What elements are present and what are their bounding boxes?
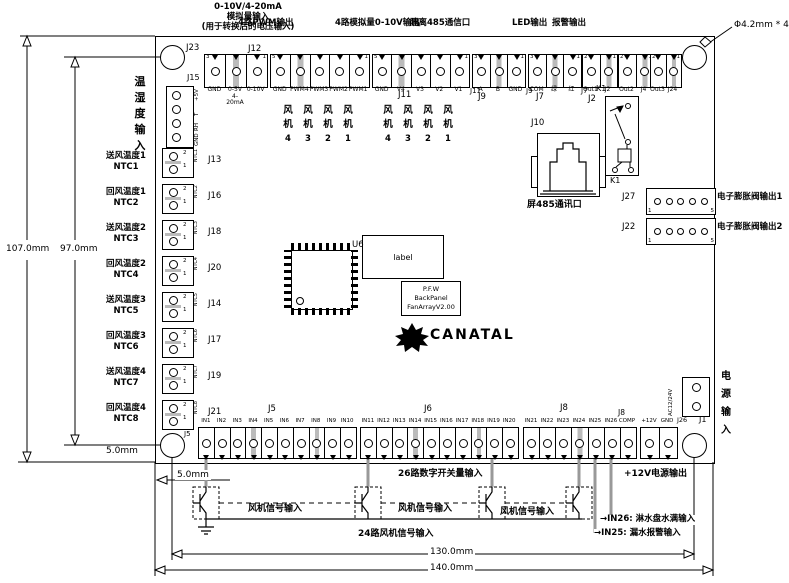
fan-char: 风 bbox=[440, 104, 456, 118]
annotation-digital-input-26: 26路数字开关量输入 bbox=[398, 469, 483, 479]
relay-k1 bbox=[605, 96, 639, 176]
pin-circle bbox=[477, 67, 486, 76]
pin-label: V1 bbox=[449, 87, 468, 94]
fan-number: 1 bbox=[340, 132, 356, 146]
ntc-silk-label: NTC2 bbox=[193, 185, 199, 198]
annotation-power-input: 电 源 输 入 bbox=[719, 368, 733, 440]
pin-circle bbox=[297, 439, 306, 448]
pin-cell bbox=[471, 428, 487, 458]
ntc-connector: 2 1 bbox=[162, 292, 194, 322]
pin-cell bbox=[376, 428, 392, 458]
pin-label: IN22 bbox=[539, 418, 555, 425]
ntc-channel-label: 回风温度3 NTC6 bbox=[96, 331, 156, 352]
pin-cell bbox=[310, 55, 330, 87]
ntc-connector: 2 1 bbox=[162, 256, 194, 286]
pin-circle bbox=[169, 332, 178, 341]
annotation-analog-output: 4路模拟量0-10V输出 bbox=[335, 19, 420, 29]
fan-group-analog: 风 机 4 风 机 3 风 机 2 风 机 1 bbox=[380, 104, 456, 146]
pin-circle bbox=[645, 439, 654, 448]
annotation-12v-output: +12V电源输出 bbox=[624, 469, 687, 479]
pin-circle bbox=[568, 67, 577, 76]
pin-number: 1 bbox=[365, 54, 369, 60]
pin-labels-j5: IN1IN2IN3IN4IN5IN6IN7IN8IN9IN10 bbox=[198, 418, 355, 425]
connector-j1 bbox=[682, 377, 710, 417]
fan-char: 机 bbox=[440, 118, 456, 132]
dimension-130mm: 130.0mm bbox=[428, 547, 475, 557]
fan-char: 风 bbox=[400, 104, 416, 118]
pin-circle bbox=[232, 67, 241, 76]
pin-cell bbox=[588, 428, 604, 458]
pin-label: IN6 bbox=[277, 418, 293, 425]
connector-j6 bbox=[360, 427, 519, 459]
connector-j9: 3 1 bbox=[472, 54, 526, 88]
pin-number: 2 bbox=[183, 402, 187, 408]
pin-number: 2 bbox=[183, 330, 187, 336]
pin-circle bbox=[551, 67, 560, 76]
ntc-designator: J21 bbox=[208, 407, 221, 417]
fan-number: 3 bbox=[300, 132, 316, 146]
pin-circle bbox=[169, 381, 178, 390]
pin-cell bbox=[230, 428, 246, 458]
ntc-silk-label: NTC6 bbox=[193, 329, 199, 342]
annotation-alarm-output: 报警输出 bbox=[552, 19, 586, 29]
pin-label: IN2 bbox=[214, 418, 230, 425]
pin-label: IN23 bbox=[555, 418, 571, 425]
pin-cell bbox=[604, 428, 620, 458]
annotation-fan-signal-3: 风机信号输入 bbox=[500, 507, 554, 517]
pin-circle bbox=[169, 404, 178, 413]
pin-circle bbox=[169, 309, 178, 318]
fan-group-pwm: 风 机 4 风 机 3 风 机 2 风 机 1 bbox=[280, 104, 356, 146]
fan-char: 风 bbox=[320, 104, 336, 118]
pin-circle bbox=[172, 91, 181, 100]
pin-cell bbox=[391, 55, 410, 87]
pin-cell bbox=[411, 55, 430, 87]
pin-circle bbox=[427, 439, 436, 448]
ntc-channel-label: 送风温度4 NTC7 bbox=[96, 367, 156, 388]
chip-pins-top bbox=[291, 243, 351, 250]
ntc-row: 回风温度2 NTC4 2 1 NTC4 J20 bbox=[162, 256, 252, 284]
ntc-channel-label: 送风温度3 NTC5 bbox=[96, 295, 156, 316]
dimension-5mm-left: 5.0mm bbox=[104, 446, 140, 456]
pin-circle bbox=[315, 67, 324, 76]
connector-j5 bbox=[198, 427, 357, 459]
pin-label: PWM2 bbox=[329, 87, 349, 94]
pin-circle bbox=[666, 198, 673, 205]
pin-number: 1 bbox=[677, 54, 681, 60]
pin-cell bbox=[214, 428, 230, 458]
pin-label: Out3 bbox=[650, 87, 665, 94]
pin-cell bbox=[361, 428, 376, 458]
annotation-fan-signal-24: 24路风机信号输入 bbox=[358, 529, 434, 539]
connector-j24: 2 1 bbox=[650, 54, 682, 88]
ntc-designator: J18 bbox=[208, 227, 221, 237]
pin-cell bbox=[290, 55, 310, 87]
pin-number: 1 bbox=[263, 54, 267, 60]
pin-label: IN10 bbox=[339, 418, 355, 425]
pin-circle bbox=[443, 439, 452, 448]
fan-column: 风 机 3 bbox=[300, 104, 316, 146]
pin-labels-j12: GNDPWM4PWM3PWM2PWM1 bbox=[270, 87, 368, 94]
designator-j8-side: J8 bbox=[618, 409, 625, 418]
pin-circle bbox=[397, 67, 406, 76]
pin-number: 1 bbox=[183, 199, 187, 205]
pin-number: 1 bbox=[521, 54, 525, 60]
pin-circle bbox=[172, 133, 181, 142]
connector-j26 bbox=[640, 427, 678, 459]
pin-number: 1 bbox=[183, 415, 187, 421]
pin-number: 2 bbox=[652, 54, 656, 60]
pin-circle bbox=[355, 67, 364, 76]
ntc-designator: J14 bbox=[208, 299, 221, 309]
ntc-silk-label: NTC3 bbox=[193, 221, 199, 234]
pin-number: 2 bbox=[183, 150, 187, 156]
ac-voltage-label: AC12/24V bbox=[668, 376, 674, 416]
pin-circle bbox=[211, 67, 220, 76]
fan-column: 风 机 1 bbox=[340, 104, 356, 146]
pin-cell bbox=[555, 428, 571, 458]
pin-label: GND bbox=[194, 131, 204, 146]
fan-column: 风 机 2 bbox=[320, 104, 336, 146]
pin-label: GND bbox=[507, 87, 524, 94]
annotation-rs485-port: 隔离485通信口 bbox=[410, 19, 470, 29]
dimension-5mm-bottom: 5.0mm bbox=[175, 470, 211, 480]
fan-char: 机 bbox=[320, 118, 336, 132]
jack-tab-left bbox=[531, 156, 538, 188]
pin-label: IN1 bbox=[198, 418, 214, 425]
pin-label: J24 bbox=[665, 87, 680, 94]
ntc-channel-label: 回风温度4 NTC8 bbox=[96, 403, 156, 424]
fan-char: 风 bbox=[380, 104, 396, 118]
ntc-connector: 2 1 bbox=[162, 184, 194, 214]
dimension-140mm: 140.0mm bbox=[428, 563, 475, 573]
pin-circle bbox=[559, 439, 568, 448]
pin-circle bbox=[169, 165, 178, 174]
pcb-diagram: 3 1 GND0-5V 4-20mA0-10V 5 1 GNDPWM4PWM3P… bbox=[0, 0, 789, 583]
pin-circle bbox=[276, 67, 285, 76]
pin-cell bbox=[620, 428, 636, 458]
pin-circle bbox=[654, 67, 663, 76]
pin-circle bbox=[677, 198, 684, 205]
ntc-connector: 2 1 bbox=[162, 148, 194, 178]
pin-circle bbox=[417, 67, 426, 76]
fan-column: 风 机 1 bbox=[440, 104, 456, 146]
mounting-hole-top-right bbox=[682, 45, 707, 70]
fan-number: 3 bbox=[400, 132, 416, 146]
annotation-in25-note: →IN25: 漏水报警输入 bbox=[594, 529, 681, 539]
pin-circle bbox=[459, 439, 468, 448]
designator-j5: J5 bbox=[268, 405, 276, 415]
fan-char: 风 bbox=[280, 104, 296, 118]
pin-label: IN18 bbox=[470, 418, 486, 425]
connector-j12: 5 1 bbox=[270, 54, 370, 88]
pin-label: GND bbox=[204, 87, 225, 107]
pin-circle bbox=[664, 439, 673, 448]
pin-label: PWM4 bbox=[290, 87, 310, 94]
pin-label: IN5 bbox=[261, 418, 277, 425]
pin-cell bbox=[245, 428, 261, 458]
annotation-screen-485: 屏485通讯口 bbox=[527, 200, 582, 210]
pin-circle bbox=[169, 152, 178, 161]
pin-number: 5 bbox=[711, 208, 715, 214]
firmware-version-box: P.F.W BackPanel FanArrayV2.00 bbox=[401, 281, 461, 316]
annotation-fan-signal-1: 风机信号输入 bbox=[248, 504, 302, 514]
ntc-connector: 2 1 bbox=[162, 220, 194, 250]
pin-cell bbox=[199, 428, 214, 458]
ntc-connector: 2 1 bbox=[162, 400, 194, 430]
connector-j4: 2 1 bbox=[618, 54, 654, 88]
pin-number: 3 bbox=[206, 54, 210, 60]
pin-number: 1 bbox=[183, 235, 187, 241]
pin-number: 5 bbox=[272, 54, 276, 60]
pin-circle bbox=[677, 228, 684, 235]
pin-label: COMP bbox=[619, 418, 635, 425]
pin-circle bbox=[640, 67, 649, 76]
pin-circle bbox=[169, 188, 178, 197]
pin-circle bbox=[543, 439, 552, 448]
chip-pin1-dot bbox=[296, 297, 304, 305]
pin-circle bbox=[587, 67, 596, 76]
pin-cell bbox=[524, 428, 539, 458]
designator-j6: J6 bbox=[424, 405, 432, 415]
pin-number: 1 bbox=[183, 379, 187, 385]
pin-circle bbox=[495, 67, 504, 76]
designator-j7: J7 bbox=[536, 93, 544, 103]
pin-labels-j23: GND0-5V 4-20mA0-10V bbox=[204, 87, 266, 107]
pin-labels-j8: IN21IN22IN23IN24IN25IN26COMP bbox=[523, 418, 635, 425]
pin-circle bbox=[380, 439, 389, 448]
pin-number: 2 bbox=[183, 294, 187, 300]
designator-j27: J27 bbox=[622, 193, 635, 203]
pin-circle bbox=[474, 439, 483, 448]
annotation-pwm-output: 4路PWM输出 bbox=[238, 19, 293, 29]
mounting-hole-bottom-right bbox=[682, 433, 707, 458]
pin-labels-j26: +12VGND bbox=[640, 418, 676, 425]
pin-number: 2 bbox=[183, 366, 187, 372]
connector-j2: 2 1 bbox=[582, 54, 618, 88]
pin-labels-j11: GNDV4V3V2V1 bbox=[372, 87, 468, 94]
brand-name: CANATAL bbox=[430, 327, 515, 343]
pin-labels-j4: Out2J4 bbox=[618, 87, 652, 94]
pin-circle bbox=[281, 439, 290, 448]
ntc-designator: J17 bbox=[208, 335, 221, 345]
pin-circle bbox=[169, 417, 178, 426]
pin-label: RH bbox=[194, 116, 204, 131]
pin-cell bbox=[329, 55, 349, 87]
ntc-channel-label: 送风温度2 NTC3 bbox=[96, 223, 156, 244]
pin-labels-j6: IN11IN12IN13IN14IN15IN16IN17IN18IN19IN20 bbox=[360, 418, 517, 425]
pin-circle bbox=[692, 383, 701, 392]
pin-cell bbox=[293, 428, 309, 458]
pin-number: 3 bbox=[474, 54, 478, 60]
pin-circle bbox=[654, 198, 661, 205]
pin-cell bbox=[340, 428, 356, 458]
pin-label: IN12 bbox=[376, 418, 392, 425]
pin-number: 1 bbox=[613, 54, 617, 60]
ntc-silk-label: NTC4 bbox=[193, 257, 199, 270]
fan-number: 4 bbox=[380, 132, 396, 146]
fan-char: 机 bbox=[380, 118, 396, 132]
pin-number: 1 bbox=[648, 208, 652, 214]
annotation-fan-signal-2: 风机信号输入 bbox=[398, 504, 452, 514]
pin-circle bbox=[169, 368, 178, 377]
pin-circle bbox=[169, 345, 178, 354]
connector-j22: 1 5 bbox=[646, 218, 716, 245]
pin-label: GND bbox=[372, 87, 391, 94]
pin-label: V2 bbox=[430, 87, 449, 94]
ntc-designator: J19 bbox=[208, 371, 221, 381]
fan-char: 机 bbox=[420, 118, 436, 132]
ntc-row: 回风温度1 NTC2 2 1 NTC2 J16 bbox=[162, 184, 252, 212]
pin-circle bbox=[654, 228, 661, 235]
designator-j5-side: J5 bbox=[184, 430, 191, 438]
annotation-eev-output-2: 电子膨胀阀输出2 bbox=[717, 223, 782, 233]
pin-number: 2 bbox=[584, 54, 588, 60]
pin-circle bbox=[669, 67, 678, 76]
pin-circle bbox=[344, 439, 353, 448]
pin-circle bbox=[512, 67, 521, 76]
pin-label: IN8 bbox=[308, 418, 324, 425]
pin-number: 1 bbox=[183, 343, 187, 349]
pin-number: 2 bbox=[183, 186, 187, 192]
pin-cell bbox=[546, 55, 564, 87]
ntc-row: 送风温度3 NTC5 2 1 NTC5 J14 bbox=[162, 292, 252, 320]
pin-number: 1 bbox=[183, 271, 187, 277]
fan-char: 机 bbox=[300, 118, 316, 132]
pin-label: IN26 bbox=[603, 418, 619, 425]
pin-circle bbox=[604, 67, 613, 76]
annotation-temp-humidity-input: 温 湿 度 输 入 bbox=[133, 74, 147, 154]
pin-cell bbox=[486, 428, 502, 458]
ntc-row: 送风温度1 NTC1 2 1 NTC1 J13 bbox=[162, 148, 252, 176]
pin-label: IN11 bbox=[360, 418, 376, 425]
pin-circle bbox=[592, 439, 601, 448]
pin-label: IN3 bbox=[229, 418, 245, 425]
pin-number: 1 bbox=[648, 238, 652, 244]
pin-cell bbox=[659, 428, 678, 458]
pin-circle bbox=[172, 105, 181, 114]
pin-label: V3 bbox=[410, 87, 429, 94]
pin-circle bbox=[455, 67, 464, 76]
connector-j15 bbox=[166, 86, 194, 148]
pin-number: 3 bbox=[530, 54, 534, 60]
dimension-97mm: 97.0mm bbox=[58, 244, 100, 254]
pin-circle bbox=[169, 224, 178, 233]
pin-label: +5V bbox=[194, 86, 204, 101]
annotation-hole-spec: Φ4.2mm * 4 bbox=[734, 20, 789, 30]
ntc-designator: J13 bbox=[208, 155, 221, 165]
designator-j9: J9 bbox=[478, 93, 486, 103]
ntc-connector: 2 1 bbox=[162, 364, 194, 394]
pin-cell bbox=[407, 428, 423, 458]
annotation-led-output: LED输出 bbox=[512, 19, 547, 29]
pin-circle bbox=[506, 439, 515, 448]
fan-char: 机 bbox=[280, 118, 296, 132]
pin-label: +12V bbox=[640, 418, 658, 425]
ntc-designator: J16 bbox=[208, 191, 221, 201]
designator-j15: J15 bbox=[187, 73, 200, 82]
pin-cell bbox=[490, 55, 508, 87]
pin-circle bbox=[335, 67, 344, 76]
pin-circle bbox=[265, 439, 274, 448]
pin-number: 5 bbox=[711, 238, 715, 244]
designator-j10: J10 bbox=[531, 119, 544, 129]
pin-label: IN14 bbox=[407, 418, 423, 425]
pin-label: IN16 bbox=[439, 418, 455, 425]
pin-circle bbox=[249, 439, 258, 448]
chip-pins-left bbox=[284, 250, 291, 308]
ntc-channel-label: 回风温度1 NTC2 bbox=[96, 187, 156, 208]
pin-circle bbox=[169, 260, 178, 269]
ntc-row: 送风温度4 NTC7 2 1 NTC7 J19 bbox=[162, 364, 252, 392]
fan-column: 风 机 4 bbox=[280, 104, 296, 146]
pin-number: 2 bbox=[183, 258, 187, 264]
mounting-hole-bottom-left bbox=[160, 433, 185, 458]
pin-cell bbox=[324, 428, 340, 458]
pin-circle bbox=[436, 67, 445, 76]
ntc-channel-label: 送风温度1 NTC1 bbox=[96, 151, 156, 172]
annotation-in26-note: →IN26: 淋水盘水满输入 bbox=[600, 515, 695, 525]
ntc-silk-label: NTC7 bbox=[193, 365, 199, 378]
designator-j23: J23 bbox=[186, 44, 199, 54]
pin-circle bbox=[527, 439, 536, 448]
pin-cell bbox=[392, 428, 408, 458]
fan-number: 1 bbox=[440, 132, 456, 146]
pin-label: Out2 bbox=[618, 87, 635, 94]
designator-j1: J1 bbox=[699, 415, 706, 424]
ntc-silk-label: NTC8 bbox=[193, 401, 199, 414]
pin-number: 2 bbox=[620, 54, 624, 60]
pin-cell bbox=[309, 428, 325, 458]
fan-column: 风 机 2 bbox=[420, 104, 436, 146]
pin-label: IN7 bbox=[292, 418, 308, 425]
pin-number: 1 bbox=[183, 307, 187, 313]
pin-circle bbox=[623, 67, 632, 76]
fan-char: 机 bbox=[340, 118, 356, 132]
pin-label: IN17 bbox=[454, 418, 470, 425]
pin-label: IN13 bbox=[391, 418, 407, 425]
pin-circle bbox=[296, 67, 305, 76]
pin-circle bbox=[233, 439, 242, 448]
pin-cell bbox=[539, 428, 555, 458]
designator-j11: J11 bbox=[398, 91, 411, 101]
fan-number: 2 bbox=[420, 132, 436, 146]
pin-circle bbox=[169, 296, 178, 305]
pin-cell bbox=[502, 428, 518, 458]
pin-circle bbox=[692, 402, 701, 411]
pin-label: IN21 bbox=[523, 418, 539, 425]
ntc-row: 送风温度2 NTC3 2 1 NTC3 J18 bbox=[162, 220, 252, 248]
pin-label: 红 bbox=[563, 87, 580, 94]
pin-cell bbox=[455, 428, 471, 458]
pin-label: GND bbox=[270, 87, 290, 94]
pin-circle bbox=[701, 198, 708, 205]
pin-cell bbox=[261, 428, 277, 458]
pin-circle bbox=[378, 67, 387, 76]
pin-cell bbox=[225, 55, 246, 87]
ntc-row: 回风温度3 NTC6 2 1 NTC6 J17 bbox=[162, 328, 252, 356]
pin-circle bbox=[202, 439, 211, 448]
pin-cell bbox=[423, 428, 439, 458]
pin-label: IN15 bbox=[423, 418, 439, 425]
pin-circle bbox=[666, 228, 673, 235]
pin-label: B bbox=[489, 87, 506, 94]
connector-j7: 3 1 bbox=[528, 54, 582, 88]
connector-j27: 1 5 bbox=[646, 188, 716, 215]
pin-label: 绿 bbox=[545, 87, 562, 94]
pin-label: IN9 bbox=[324, 418, 340, 425]
fan-column: 风 机 4 bbox=[380, 104, 396, 146]
